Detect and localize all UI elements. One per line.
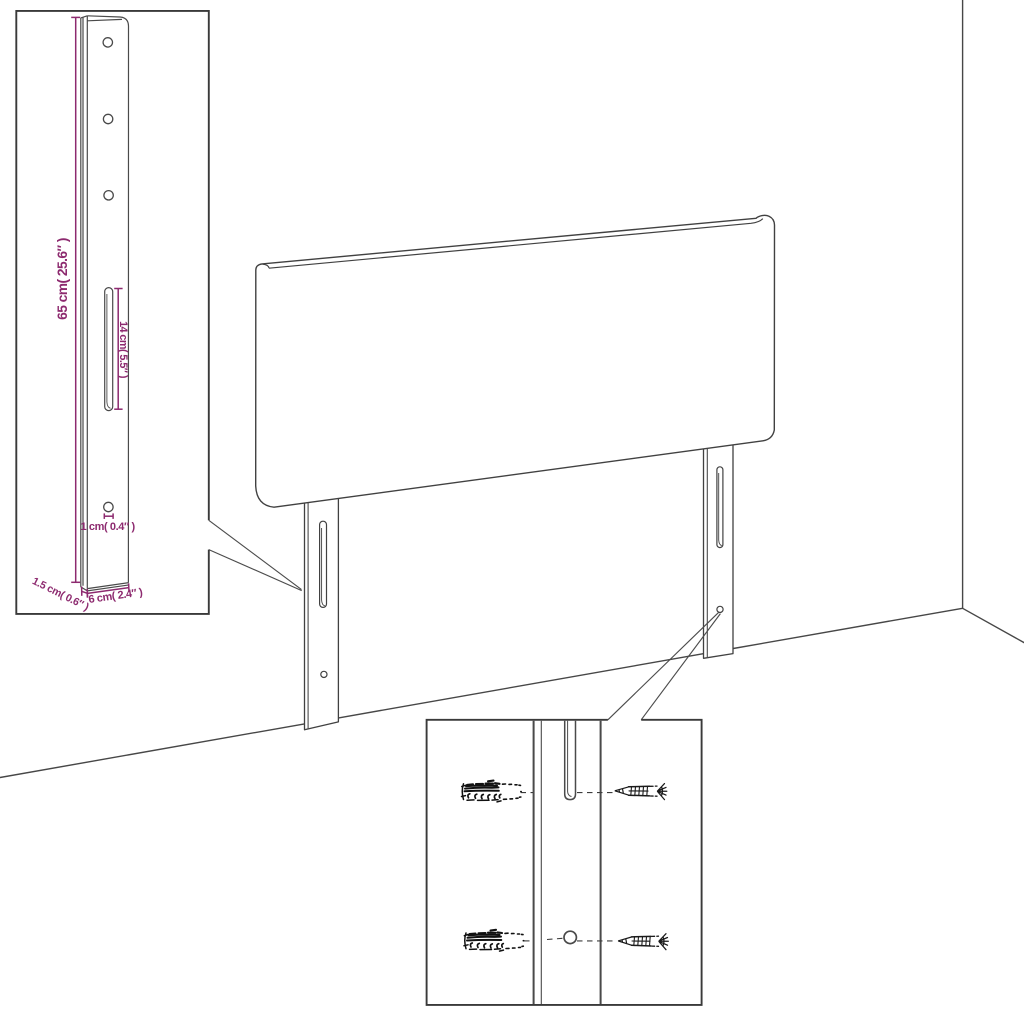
svg-text:1 cm( 0.4″ ): 1 cm( 0.4″ ) xyxy=(81,521,136,533)
svg-text:65 cm( 25.6″ ): 65 cm( 25.6″ ) xyxy=(55,238,70,320)
svg-text:14 cm( 5.5″ ): 14 cm( 5.5″ ) xyxy=(117,321,129,379)
